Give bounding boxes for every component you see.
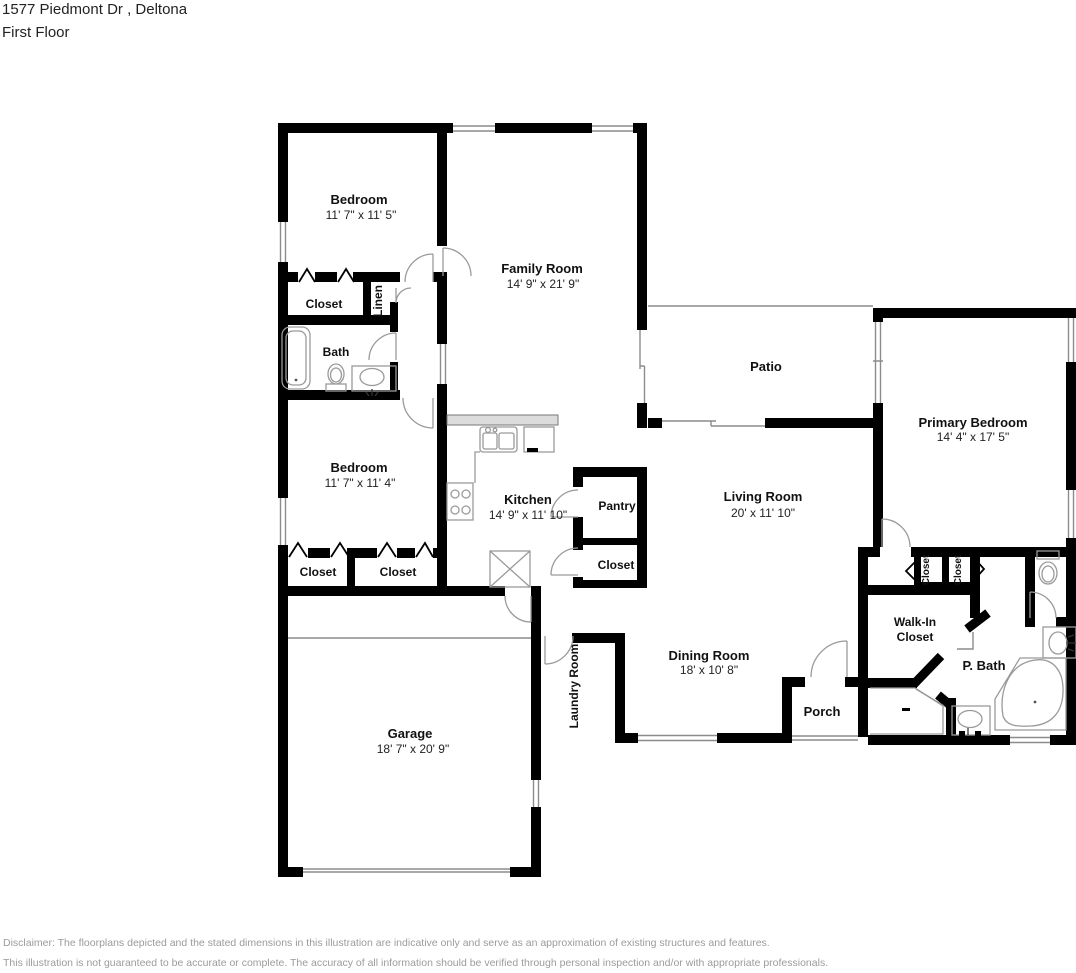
window [1069, 318, 1074, 362]
wall [278, 123, 288, 222]
label-patio: Patio [750, 359, 782, 374]
wall [1056, 617, 1076, 627]
window [281, 498, 286, 545]
dims-dining-room: 18' x 10' 8" [680, 663, 738, 677]
wall [858, 585, 978, 595]
door-arc [369, 333, 396, 360]
dims-primary-bedroom: 14' 4" x 17' 5" [937, 430, 1009, 444]
label-kitchen: Kitchen [504, 492, 552, 507]
wall [347, 548, 355, 586]
wall [583, 538, 637, 545]
wall [792, 677, 805, 687]
wall [353, 272, 400, 282]
wall [397, 548, 415, 558]
bath-vanity [352, 366, 396, 391]
kitchen-faucet [493, 428, 497, 432]
window [281, 222, 286, 262]
wall [278, 586, 505, 596]
windows [281, 126, 1074, 872]
wall [573, 467, 583, 487]
wall [858, 547, 868, 737]
dishwasher-mark [527, 448, 538, 452]
wall [637, 467, 647, 588]
tub-drain [295, 379, 298, 382]
dims-living-room: 20' x 11' 10" [731, 506, 795, 520]
wall [868, 735, 1010, 745]
label-bedroom2: Bedroom [330, 460, 387, 475]
door-arc [403, 398, 433, 428]
label-walkin-line1: Walk-In [894, 615, 936, 629]
window [534, 780, 539, 807]
bath-sink [360, 369, 384, 386]
wall [573, 580, 647, 588]
shower-head-mark [902, 708, 910, 711]
sliding-door [640, 330, 645, 403]
wall [1025, 617, 1035, 627]
label-closet-bd2a: Closet [300, 565, 337, 579]
label-living-room: Living Room [724, 489, 803, 504]
label-family-room: Family Room [501, 261, 583, 276]
wall [637, 403, 647, 428]
wall [765, 418, 873, 428]
wall [278, 272, 298, 282]
label-closet-bd2b: Closet [380, 565, 417, 579]
label-closet-bd1: Closet [306, 297, 343, 311]
wall [390, 315, 398, 332]
pbath-sink2 [958, 711, 982, 728]
label-closet-p1: Closet [921, 554, 932, 585]
walkin-notch [957, 632, 973, 649]
counter-edge [475, 452, 480, 483]
door-arc [505, 596, 531, 622]
label-porch: Porch [804, 704, 841, 719]
disclaimer-line2: This illustration is not guaranteed to b… [3, 953, 828, 973]
wall [433, 548, 447, 558]
window [638, 736, 717, 741]
wall [1050, 735, 1076, 745]
wall [615, 733, 638, 743]
door-arc [882, 519, 910, 547]
window [453, 126, 495, 131]
window [592, 126, 633, 131]
kitchen-counter [447, 415, 558, 425]
chevron [338, 269, 354, 282]
wall [1066, 362, 1076, 490]
label-closet-pantry: Closet [598, 558, 635, 572]
door-arc [405, 254, 433, 282]
toilet-bowl-inner [331, 368, 342, 382]
wall [717, 733, 782, 743]
label-pbath: P. Bath [962, 658, 1005, 673]
wall [637, 125, 647, 330]
wall [531, 807, 541, 877]
window [1010, 738, 1050, 743]
wall [531, 586, 541, 780]
label-bedroom1: Bedroom [330, 192, 387, 207]
wall [782, 677, 792, 743]
walls [278, 123, 1076, 877]
wall [495, 123, 592, 133]
dims-bedroom1: 11' 7" x 11' 5" [326, 208, 397, 222]
label-closet-p2: Closet [953, 554, 964, 585]
wall [573, 517, 583, 550]
corner-tub [1002, 660, 1063, 727]
door-arc [396, 288, 411, 303]
wall [648, 418, 662, 428]
wall [390, 302, 398, 315]
wall [437, 125, 447, 246]
wall [363, 282, 371, 315]
cased-opening [441, 344, 446, 384]
wall [873, 308, 1076, 318]
chevron [289, 543, 307, 557]
disclaimer-line1: Disclaimer: The floorplans depicted and … [3, 933, 828, 953]
room-labels: Bedroom 11' 7" x 11' 5" Family Room 14' … [300, 192, 1028, 756]
label-dining-room: Dining Room [669, 648, 750, 663]
label-laundry-room: Laundry Room [567, 644, 581, 729]
pbath-sink [1049, 632, 1067, 654]
disclaimer: Disclaimer: The floorplans depicted and … [3, 933, 828, 973]
wall [1066, 308, 1076, 318]
faucet-mark [975, 731, 981, 736]
window [1069, 490, 1074, 538]
wall [845, 677, 858, 687]
kitchen-sink-basin [499, 433, 514, 449]
faucet-mark [959, 731, 965, 736]
chevron [378, 543, 396, 557]
sliding-door [662, 421, 765, 426]
bathtub-inner [286, 331, 306, 385]
burner [462, 506, 470, 514]
floorplan-image: Bedroom 11' 7" x 11' 5" Family Room 14' … [0, 0, 1076, 960]
wall [573, 467, 647, 477]
burner [451, 490, 459, 498]
stove [447, 483, 473, 520]
wall [437, 276, 447, 344]
wall [914, 656, 941, 684]
dims-kitchen: 14' 9" x 11' 10" [489, 508, 567, 522]
chevron [906, 562, 915, 580]
refrigerator-x [490, 551, 530, 587]
label-garage: Garage [388, 726, 433, 741]
burner [462, 490, 470, 498]
kitchen-faucet [486, 428, 491, 433]
chevron [416, 543, 433, 557]
tub-platform [995, 658, 1066, 730]
toilet-tank [326, 384, 346, 391]
label-walkin-line2: Closet [897, 630, 934, 644]
wall [615, 633, 625, 743]
dims-garage: 18' 7" x 20' 9" [377, 742, 449, 756]
kitchen-sink-basin [483, 433, 497, 449]
label-pantry: Pantry [598, 499, 636, 513]
wall [308, 548, 330, 558]
dims-bedroom2: 11' 7" x 11' 4" [325, 476, 396, 490]
wall [868, 678, 917, 688]
door-arc [443, 248, 471, 276]
wall [873, 308, 883, 322]
wall [278, 867, 303, 877]
burner [451, 506, 459, 514]
wall [315, 272, 337, 282]
chevron [331, 543, 349, 557]
chevron [299, 269, 315, 282]
door-arc [551, 548, 578, 575]
toilet-bowl-inner [1042, 566, 1054, 582]
label-primary-bedroom: Primary Bedroom [918, 415, 1027, 430]
wall [278, 123, 453, 133]
porch-edge [792, 736, 858, 740]
tub-drain [1034, 701, 1037, 704]
window [873, 322, 883, 403]
label-linen: Linen [371, 285, 385, 317]
dims-family-room: 14' 9" x 21' 9" [507, 277, 579, 291]
garage-door [303, 869, 510, 872]
label-bath: Bath [323, 345, 350, 359]
door-arc [811, 641, 847, 677]
